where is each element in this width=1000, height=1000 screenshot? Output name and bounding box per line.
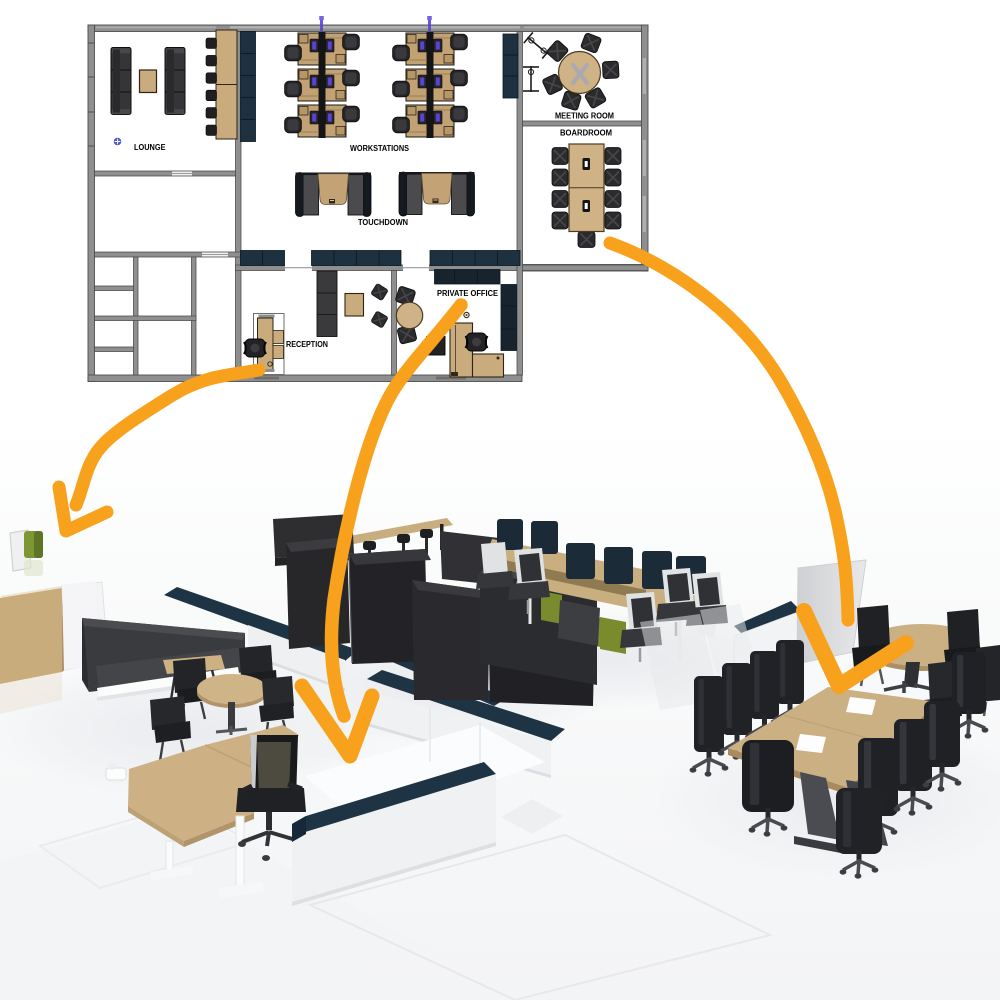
- svg-text:PRIVATE OFFICE: PRIVATE OFFICE: [437, 288, 498, 298]
- svg-text:BOARDROOM: BOARDROOM: [560, 128, 612, 138]
- svg-text:LOUNGE: LOUNGE: [134, 142, 166, 152]
- svg-text:WORKSTATIONS: WORKSTATIONS: [350, 143, 409, 153]
- svg-text:RECEPTION: RECEPTION: [286, 339, 328, 349]
- svg-text:TOUCHDOWN: TOUCHDOWN: [358, 217, 408, 227]
- svg-text:MEETING ROOM: MEETING ROOM: [555, 111, 614, 121]
